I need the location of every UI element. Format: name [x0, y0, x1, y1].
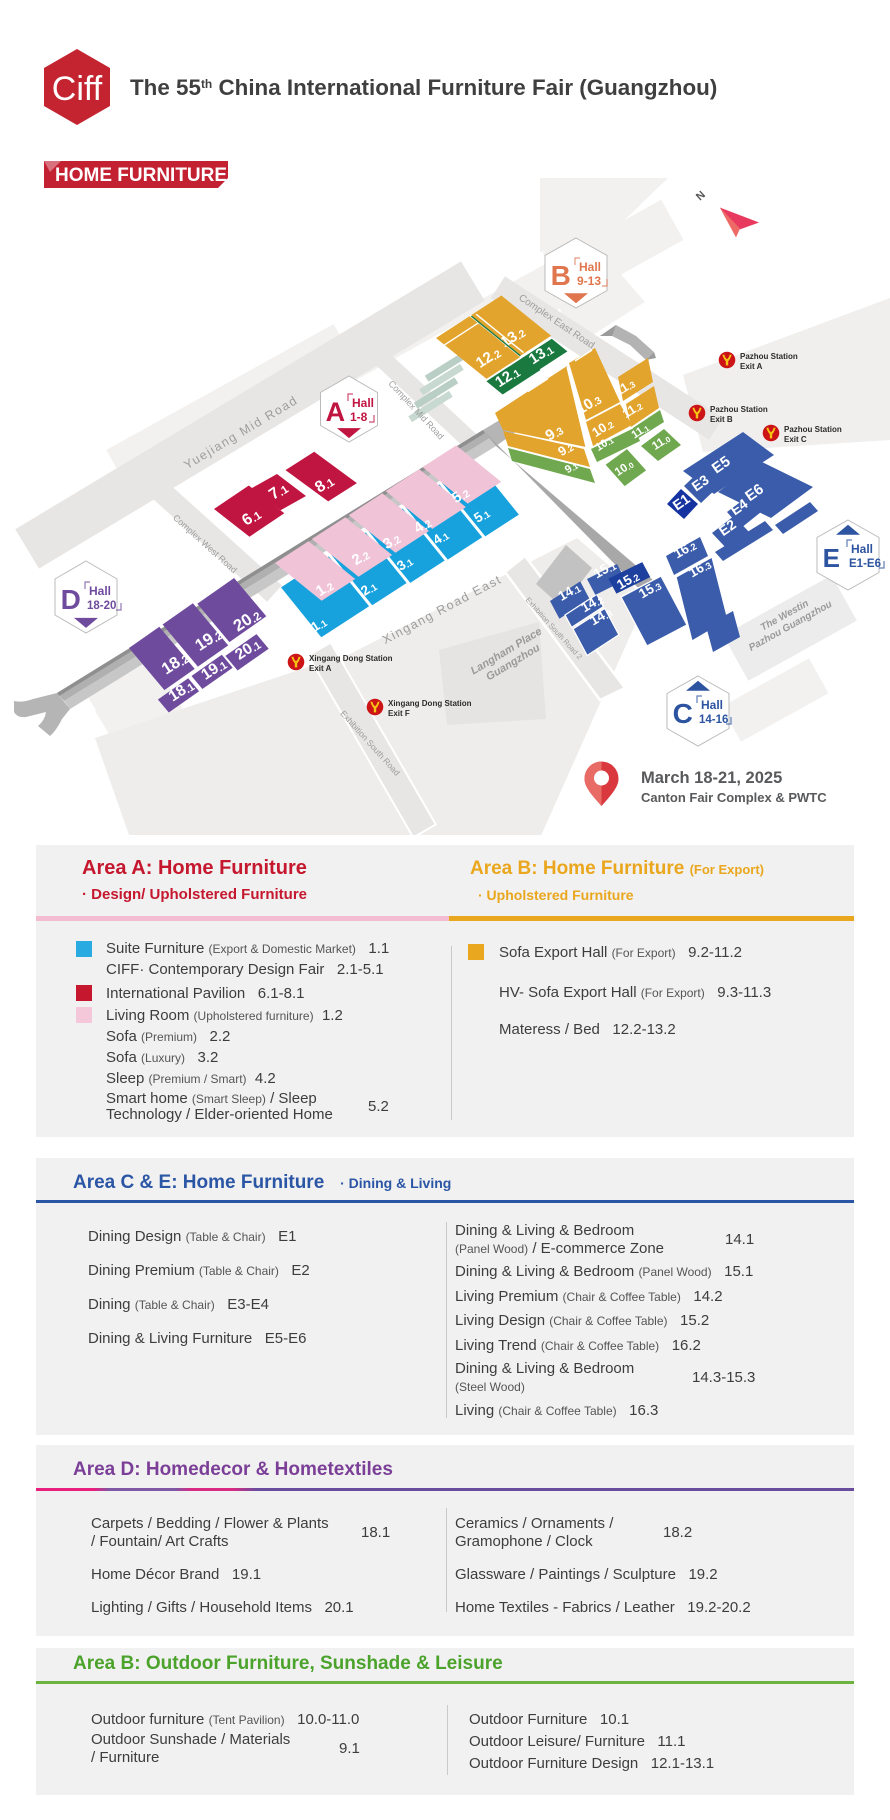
svg-text:Exit F: Exit F — [388, 709, 410, 718]
svg-text:E1-E6: E1-E6 — [849, 558, 881, 570]
svg-text:Pazhou Station: Pazhou Station — [710, 405, 768, 414]
svg-text:Canton Fair Complex & PWTC: Canton Fair Complex & PWTC — [641, 790, 827, 805]
svg-text:Xingang Dong Station: Xingang Dong Station — [388, 699, 472, 708]
svg-text:9-13: 9-13 — [577, 274, 601, 288]
svg-text:1-8: 1-8 — [350, 410, 368, 424]
svg-text:Exit A: Exit A — [740, 362, 763, 371]
svg-text:Hall: Hall — [579, 260, 601, 274]
svg-text:14-16: 14-16 — [699, 714, 728, 726]
svg-text:Exit C: Exit C — [784, 435, 807, 444]
svg-text:D: D — [61, 584, 81, 615]
svg-text:Hall: Hall — [701, 698, 723, 712]
svg-text:March 18-21, 2025: March 18-21, 2025 — [641, 769, 782, 787]
svg-text:A: A — [326, 397, 346, 427]
svg-text:B: B — [551, 260, 571, 291]
svg-text:N: N — [694, 189, 708, 203]
svg-text:Hall: Hall — [89, 584, 111, 598]
svg-text:Hall: Hall — [851, 542, 873, 556]
svg-text:Pazhou Station: Pazhou Station — [784, 425, 842, 434]
svg-text:Hall: Hall — [352, 396, 374, 410]
svg-text:18-20: 18-20 — [87, 600, 116, 612]
svg-text:E: E — [823, 543, 840, 573]
svg-text:Exit A: Exit A — [309, 664, 332, 673]
svg-text:C: C — [673, 698, 693, 729]
svg-text:Exit B: Exit B — [710, 415, 733, 424]
svg-text:Pazhou Station: Pazhou Station — [740, 352, 798, 361]
svg-text:Xingang Dong Station: Xingang Dong Station — [309, 654, 393, 663]
